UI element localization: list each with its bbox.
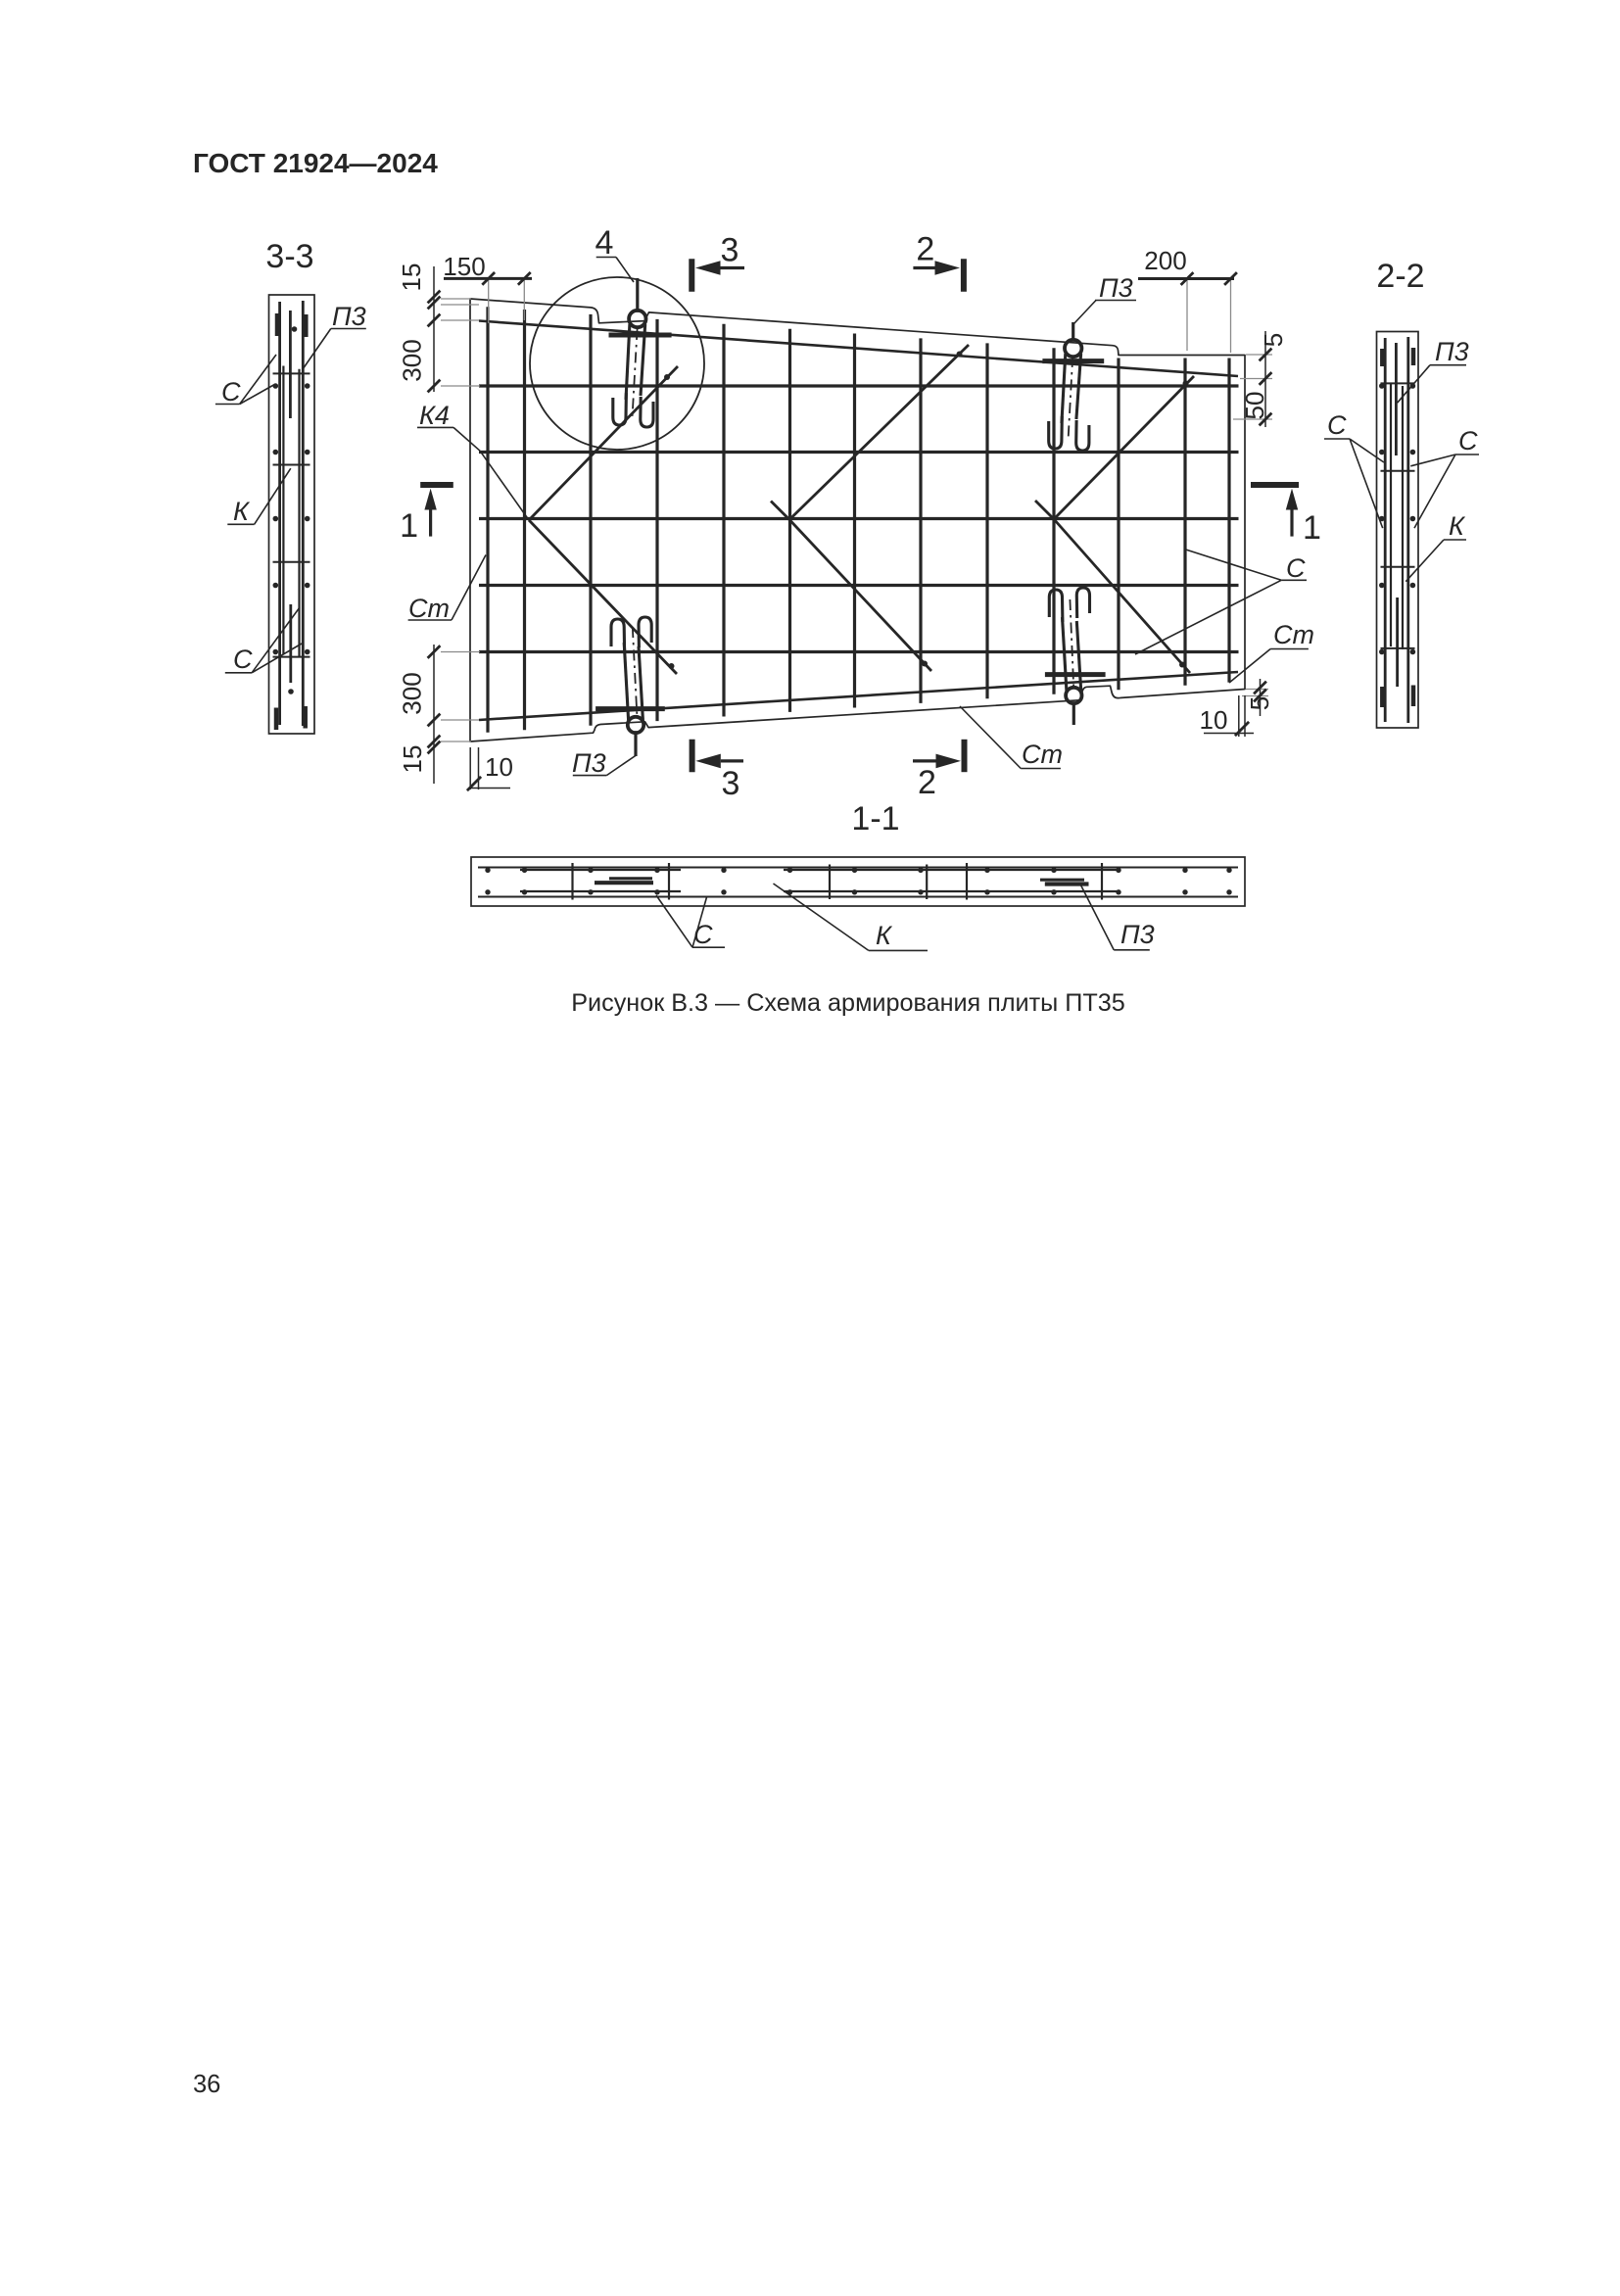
svg-text:300: 300 xyxy=(398,672,427,714)
svg-text:Ст: Ст xyxy=(1273,620,1314,649)
svg-text:36: 36 xyxy=(193,2071,220,2098)
svg-text:1: 1 xyxy=(1303,509,1321,547)
svg-text:Рисунок В.3 — Схема армировани: Рисунок В.3 — Схема армирования плиты ПТ… xyxy=(571,989,1125,1017)
svg-text:1: 1 xyxy=(400,507,418,545)
svg-text:3-3: 3-3 xyxy=(265,238,313,275)
svg-text:П3: П3 xyxy=(1435,337,1469,366)
svg-text:10: 10 xyxy=(1200,705,1228,735)
svg-text:К: К xyxy=(1449,511,1466,541)
svg-text:5: 5 xyxy=(1245,696,1274,710)
svg-text:П3: П3 xyxy=(572,748,606,778)
svg-text:С: С xyxy=(233,645,253,674)
svg-text:10: 10 xyxy=(485,752,513,782)
svg-text:К: К xyxy=(876,921,893,950)
svg-text:1-1: 1-1 xyxy=(851,800,899,837)
svg-text:С: С xyxy=(221,377,241,407)
svg-text:200: 200 xyxy=(1144,246,1186,275)
svg-text:К4: К4 xyxy=(419,401,450,430)
svg-text:П3: П3 xyxy=(1099,273,1133,303)
svg-text:С: С xyxy=(1286,553,1306,583)
svg-text:150: 150 xyxy=(443,252,485,281)
svg-text:С: С xyxy=(1458,426,1478,455)
svg-text:2-2: 2-2 xyxy=(1376,258,1424,295)
svg-text:2: 2 xyxy=(918,764,936,801)
svg-text:С: С xyxy=(1327,410,1347,440)
svg-text:15: 15 xyxy=(397,263,426,292)
svg-text:Ст: Ст xyxy=(1022,740,1063,769)
svg-text:ГОСТ 21924—2024: ГОСТ 21924—2024 xyxy=(193,148,438,178)
svg-text:3: 3 xyxy=(722,765,740,802)
svg-text:5: 5 xyxy=(1259,333,1288,347)
svg-text:4: 4 xyxy=(596,224,614,262)
svg-text:300: 300 xyxy=(398,339,427,381)
svg-text:П3: П3 xyxy=(332,302,366,331)
svg-text:50: 50 xyxy=(1240,392,1269,420)
svg-text:2: 2 xyxy=(916,231,934,268)
svg-text:Ст: Ст xyxy=(408,594,450,623)
svg-text:3: 3 xyxy=(721,232,739,269)
svg-text:15: 15 xyxy=(398,745,427,774)
svg-text:К: К xyxy=(233,497,251,526)
svg-text:П3: П3 xyxy=(1120,920,1155,949)
